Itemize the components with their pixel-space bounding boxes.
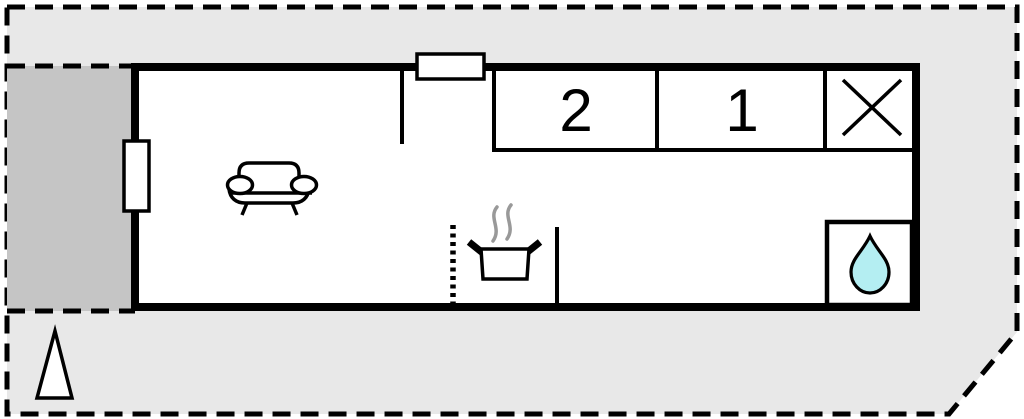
bedroom-2-label: 2 [559,77,592,144]
terrace [7,66,135,311]
terrace-area [7,66,135,311]
window-top-icon [417,54,484,79]
sofa-armrest-right [292,177,317,194]
pot-body [481,249,529,279]
floor-plan: 2 1 [0,0,1024,419]
bedroom-1-label: 1 [725,77,758,144]
sofa-armrest-left [228,177,253,194]
window-left-icon [124,141,149,211]
bathroom [827,222,912,305]
